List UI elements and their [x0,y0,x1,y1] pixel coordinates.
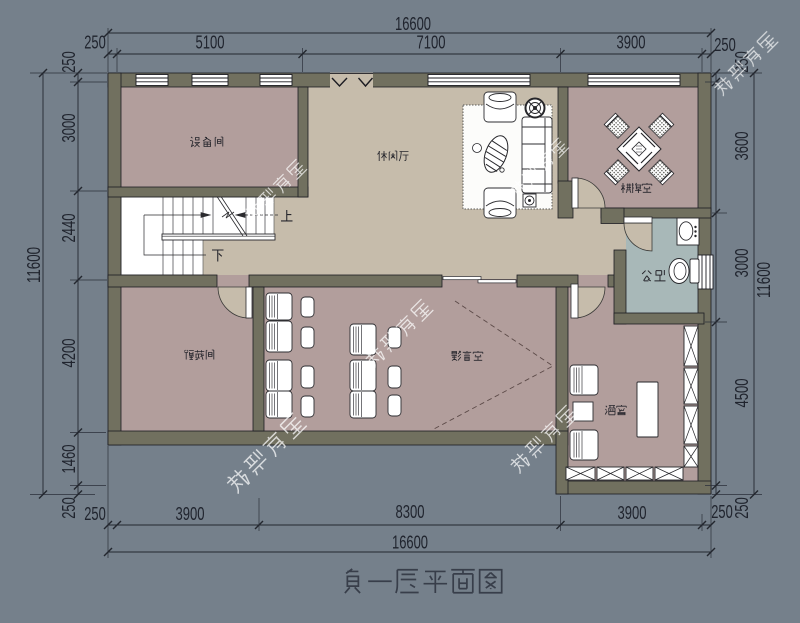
svg-text:4200: 4200 [59,339,79,368]
svg-text:3600: 3600 [732,132,752,161]
svg-text:3900: 3900 [618,503,647,523]
svg-text:1460: 1460 [59,445,79,474]
svg-text:250: 250 [59,51,79,73]
svg-text:8300: 8300 [396,502,425,522]
svg-text:250: 250 [711,502,733,522]
svg-text:3900: 3900 [617,33,646,53]
svg-text:250: 250 [59,497,79,519]
svg-text:11600: 11600 [754,262,774,298]
svg-text:5100: 5100 [196,33,225,53]
svg-text:250: 250 [84,33,106,53]
svg-text:3000: 3000 [732,249,752,278]
svg-text:250: 250 [732,497,752,519]
svg-text:11600: 11600 [24,247,44,283]
svg-text:16600: 16600 [395,14,431,34]
svg-text:2440: 2440 [59,214,79,243]
svg-text:7100: 7100 [417,33,446,53]
svg-text:250: 250 [84,504,106,524]
svg-text:3000: 3000 [59,114,79,143]
svg-text:3900: 3900 [176,504,205,524]
svg-text:16600: 16600 [392,533,428,553]
svg-text:4500: 4500 [732,379,752,408]
